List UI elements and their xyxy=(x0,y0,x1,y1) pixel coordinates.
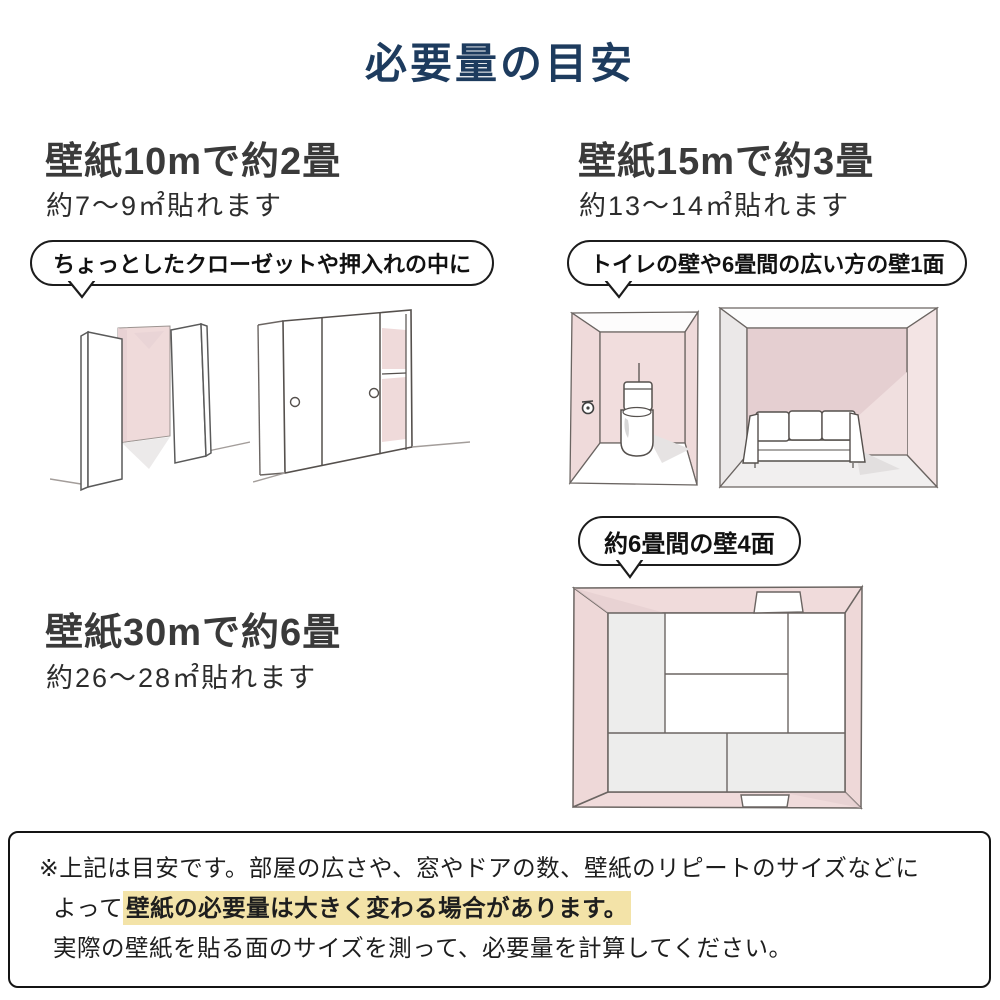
six-tatami-room-sketch xyxy=(565,582,865,812)
section-30m-heading: 壁紙30mで約6畳 xyxy=(45,601,341,656)
speech-bubble-label: トイレの壁や6畳間の広い方の壁1面 xyxy=(590,247,944,279)
closet-sliding-doors-sketch xyxy=(253,303,470,493)
note-line-2-prefix: よって xyxy=(53,895,123,921)
speech-bubble-tail xyxy=(614,560,646,580)
section-10m-speech-bubble: ちょっとしたクローゼットや押入れの中に xyxy=(30,240,494,286)
section-15m-heading: 壁紙15mで約3畳 xyxy=(578,130,874,185)
note-line-3: 実際の壁紙を貼る面のサイズを測って、必要量を計算してください。 xyxy=(53,928,971,968)
note-line-2: よって壁紙の必要量は大きく変わる場合があります。 xyxy=(53,888,971,928)
speech-bubble-tail xyxy=(66,281,98,300)
speech-bubble-tail xyxy=(603,281,635,300)
closet-open-doors-sketch xyxy=(50,303,250,493)
section-15m-speech-bubble: トイレの壁や6畳間の広い方の壁1面 xyxy=(567,240,967,286)
note-highlight: 壁紙の必要量は大きく変わる場合があります。 xyxy=(123,891,631,925)
section-10m-heading: 壁紙10mで約2畳 xyxy=(45,130,341,185)
wallpaper-quantity-guide: 必要量の目安 壁紙10mで約2畳 約7〜9㎡貼れます ちょっとしたクローゼットや… xyxy=(0,0,1000,1000)
section-30m-subheading: 約26〜28㎡貼れます xyxy=(46,656,317,695)
living-room-sketch xyxy=(712,302,942,492)
section-15m-subheading: 約13〜14㎡貼れます xyxy=(579,184,850,223)
section-10m-subheading: 約7〜9㎡貼れます xyxy=(46,184,283,223)
speech-bubble-label: ちょっとしたクローゼットや押入れの中に xyxy=(53,247,471,279)
page-title: 必要量の目安 xyxy=(0,30,1000,91)
speech-bubble-label: 約6畳間の壁4面 xyxy=(604,524,775,559)
toilet-room-sketch xyxy=(562,302,707,492)
section-30m-speech-bubble: 約6畳間の壁4面 xyxy=(578,516,801,566)
disclaimer-note-box: ※上記は目安です。部屋の広さや、窓やドアの数、壁紙のリピートのサイズなどに よっ… xyxy=(8,831,991,988)
note-line-1: ※上記は目安です。部屋の広さや、窓やドアの数、壁紙のリピートのサイズなどに xyxy=(53,848,971,888)
